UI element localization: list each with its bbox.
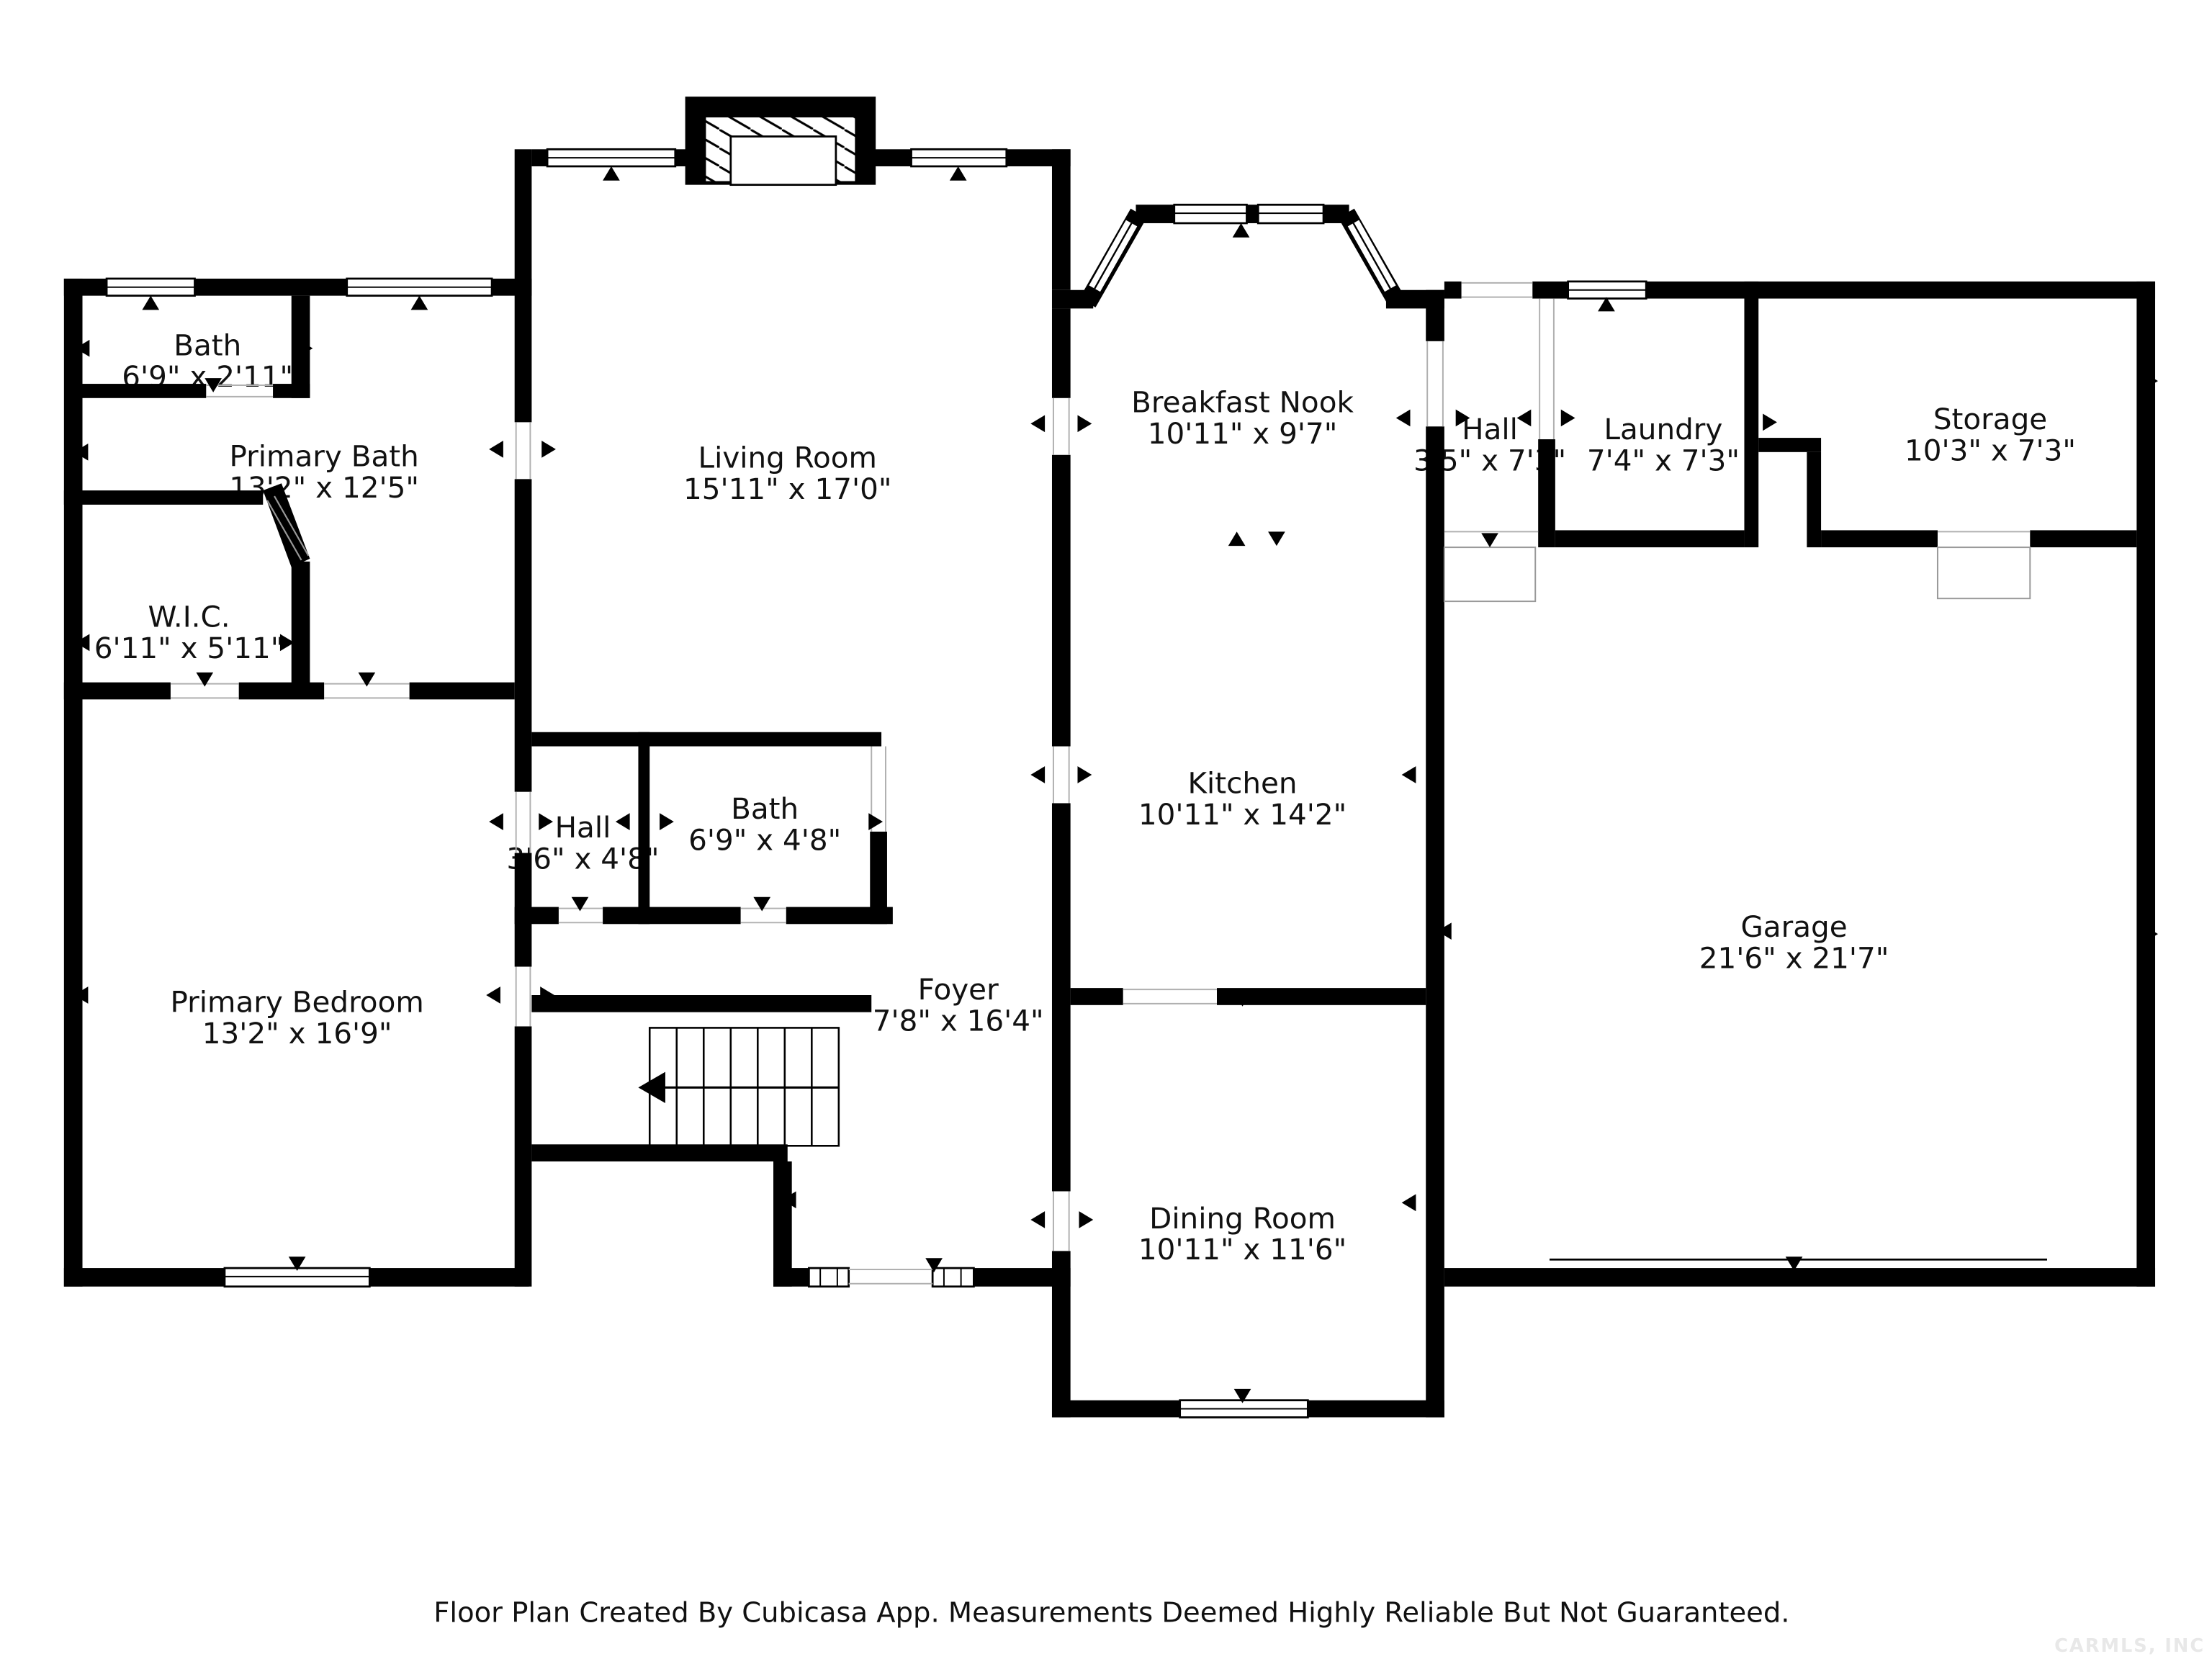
room-label-kitchen: Kitchen 10'11" x 14'2" — [1138, 766, 1346, 832]
room-name: Bath — [174, 328, 241, 363]
room-name: Laundry — [1604, 412, 1722, 446]
room-label-breakfast-nook: Breakfast Nook 10'11" x 9'7" — [1131, 385, 1354, 451]
room-name: Living Room — [698, 441, 877, 475]
door-arrow-icon — [486, 986, 500, 1004]
garage-platforms — [1444, 547, 2030, 601]
room-label-storage: Storage 10'3" x 7'3" — [1905, 402, 2076, 467]
room-dims: 6'11" x 5'11" — [94, 631, 284, 665]
window-tick-icon — [603, 166, 620, 181]
room-name: Garage — [1740, 909, 1847, 944]
door-arrow-icon — [1481, 533, 1498, 547]
room-label-dining-room: Dining Room 10'11" x 11'6" — [1138, 1201, 1346, 1267]
door-arrow-icon — [539, 813, 553, 830]
door-arrow-icon — [541, 441, 556, 458]
door-arrow-icon — [1030, 415, 1045, 432]
room-name: Bath — [731, 791, 799, 826]
room-name: Primary Bedroom — [170, 985, 423, 1020]
door-arrow-icon — [1030, 1211, 1045, 1228]
door-arrow-icon — [1396, 410, 1411, 427]
room-dims: 13'2" x 16'9" — [202, 1016, 392, 1051]
door-arrow-icon — [1402, 1194, 1416, 1211]
window-tick-icon — [1228, 531, 1246, 546]
door-window-markers — [74, 166, 2158, 1403]
staircase — [638, 1028, 838, 1146]
room-name: Foyer — [918, 972, 999, 1007]
door-arrow-icon — [1030, 766, 1045, 783]
room-label-laundry: Laundry 7'4" x 7'3" — [1587, 412, 1740, 477]
door-arrow-icon — [1402, 766, 1416, 783]
room-name: Hall — [555, 810, 611, 845]
door-arrow-icon — [616, 813, 630, 830]
room-name: Storage — [1933, 402, 2047, 436]
door-arrow-icon — [868, 813, 883, 830]
window-tick-icon — [142, 296, 159, 310]
door-arrow-icon — [1561, 410, 1575, 427]
door-arrow-icon — [1517, 410, 1532, 427]
room-name: Dining Room — [1149, 1201, 1336, 1236]
room-label-living-room: Living Room 15'11" x 17'0" — [683, 441, 891, 506]
floor-plan-canvas: Bath 6'9" x 2'11" Primary Bath 13'2" x 1… — [0, 0, 2212, 1659]
room-dims: 10'11" x 11'6" — [1138, 1232, 1346, 1267]
window-tick-icon — [411, 296, 428, 310]
door-arrow-icon — [660, 813, 674, 830]
room-name: Kitchen — [1187, 766, 1297, 801]
door-arrow-icon — [1079, 1211, 1093, 1228]
room-dims: 6'9" x 4'8" — [688, 823, 841, 858]
window-tick-icon — [1233, 223, 1250, 238]
door-arrow-icon — [1763, 414, 1777, 431]
room-label-wic: W.I.C. 6'11" x 5'11" — [94, 600, 284, 665]
window-tick-icon — [950, 166, 967, 181]
room-label-bath-middle: Bath 6'9" x 4'8" — [688, 791, 841, 857]
room-dims: 15'11" x 17'0" — [683, 472, 891, 506]
room-labels: Bath 6'9" x 2'11" Primary Bath 13'2" x 1… — [94, 328, 2076, 1267]
floor-plan-page: { "colors": { "wall": "#000000", "label"… — [0, 0, 2212, 1659]
fireplace — [705, 117, 855, 185]
room-dims: 10'3" x 7'3" — [1905, 433, 2076, 468]
room-name: Primary Bath — [229, 439, 418, 474]
room-dims: 7'8" x 16'4" — [873, 1003, 1044, 1038]
room-dims: 10'11" x 9'7" — [1148, 416, 1338, 451]
room-label-primary-bedroom: Primary Bedroom 13'2" x 16'9" — [170, 985, 423, 1051]
footer-disclaimer: Floor Plan Created By Cubicasa App. Meas… — [433, 1597, 1789, 1629]
door-arrow-icon — [1078, 766, 1092, 783]
stairs-arrow-icon — [638, 1072, 665, 1103]
watermark-text: CARMLS, INC — [2054, 1635, 2205, 1657]
room-name: Hall — [1462, 412, 1518, 446]
door-arrow-icon — [1078, 415, 1092, 432]
door-arrow-icon — [489, 441, 503, 458]
room-name: W.I.C. — [148, 600, 230, 634]
door-arrow-icon — [489, 813, 503, 830]
room-dims: 10'11" x 14'2" — [1138, 797, 1346, 832]
door-arrow-icon — [1268, 531, 1285, 546]
room-dims: 7'4" x 7'3" — [1587, 443, 1740, 477]
room-dims: 21'6" x 21'7" — [1699, 940, 1889, 975]
room-label-foyer: Foyer 7'8" x 16'4" — [873, 972, 1044, 1038]
room-name: Breakfast Nook — [1131, 385, 1354, 420]
room-label-garage: Garage 21'6" x 21'7" — [1699, 909, 1889, 975]
